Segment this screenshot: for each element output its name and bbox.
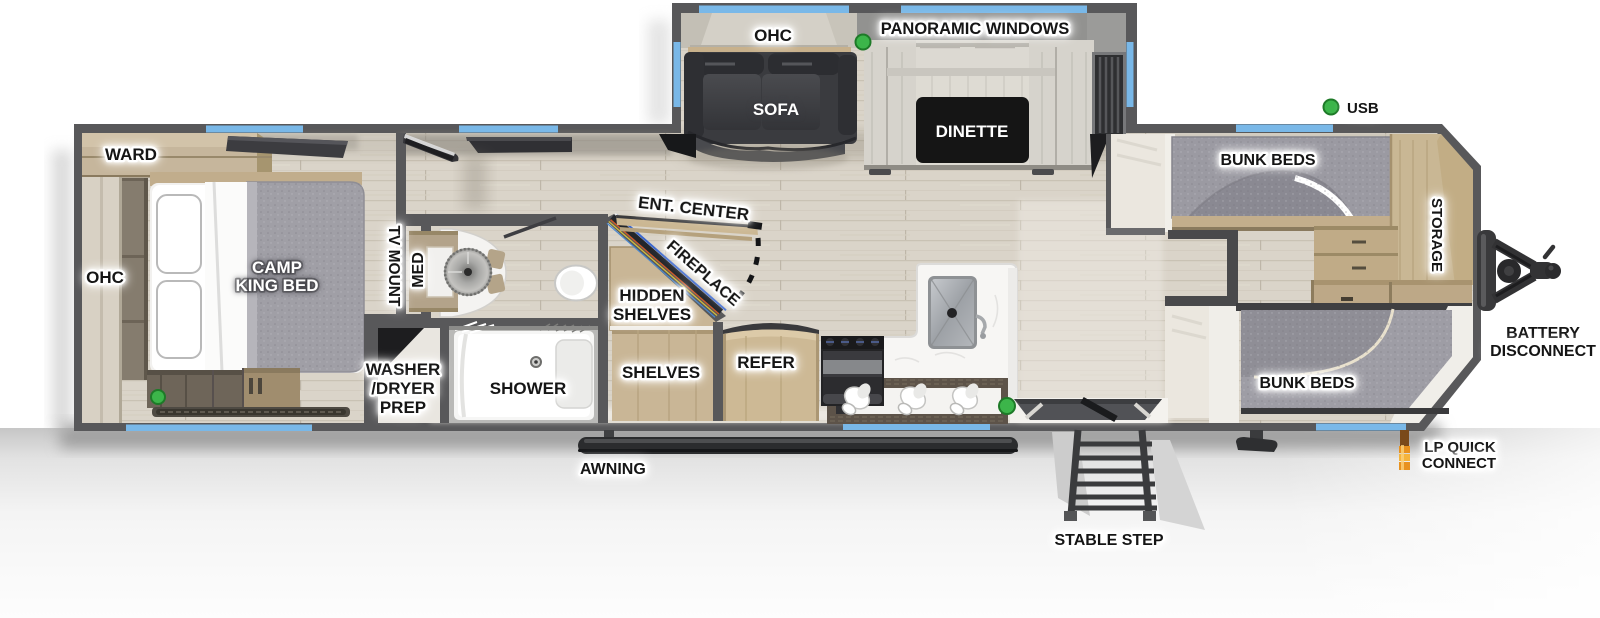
svg-text:USB: USB	[1347, 100, 1379, 117]
svg-text:OHC: OHC	[86, 268, 124, 287]
svg-text:PANORAMIC WINDOWS: PANORAMIC WINDOWS	[881, 20, 1070, 38]
svg-text:KING BED: KING BED	[235, 276, 318, 295]
svg-text:TV MOUNT: TV MOUNT	[385, 226, 402, 307]
svg-text:BATTERY: BATTERY	[1506, 325, 1580, 342]
svg-text:LP QUICK: LP QUICK	[1424, 439, 1496, 456]
svg-text:PREP: PREP	[380, 398, 426, 417]
svg-text:CAMP: CAMP	[252, 258, 302, 277]
svg-text:STORAGE: STORAGE	[1428, 198, 1445, 272]
svg-text:WARD: WARD	[105, 145, 157, 164]
svg-text:DINETTE: DINETTE	[936, 122, 1009, 141]
svg-text:SHELVES: SHELVES	[613, 305, 691, 324]
svg-text:SHELVES: SHELVES	[622, 363, 700, 382]
svg-text:HIDDEN: HIDDEN	[619, 286, 684, 305]
svg-text:BUNK BEDS: BUNK BEDS	[1259, 375, 1354, 392]
svg-text:CONNECT: CONNECT	[1422, 455, 1496, 472]
svg-text:WASHER: WASHER	[366, 360, 441, 379]
svg-text:BUNK BEDS: BUNK BEDS	[1220, 152, 1315, 169]
svg-text:SHOWER: SHOWER	[490, 379, 567, 398]
svg-text:AWNING: AWNING	[580, 461, 646, 478]
svg-text:/DRYER: /DRYER	[371, 379, 435, 398]
svg-text:STABLE STEP: STABLE STEP	[1054, 532, 1163, 549]
svg-text:REFER: REFER	[737, 353, 795, 372]
svg-text:OHC: OHC	[754, 26, 792, 45]
svg-text:DISCONNECT: DISCONNECT	[1490, 343, 1596, 360]
svg-text:MED: MED	[410, 252, 427, 288]
svg-text:SOFA: SOFA	[753, 100, 799, 119]
